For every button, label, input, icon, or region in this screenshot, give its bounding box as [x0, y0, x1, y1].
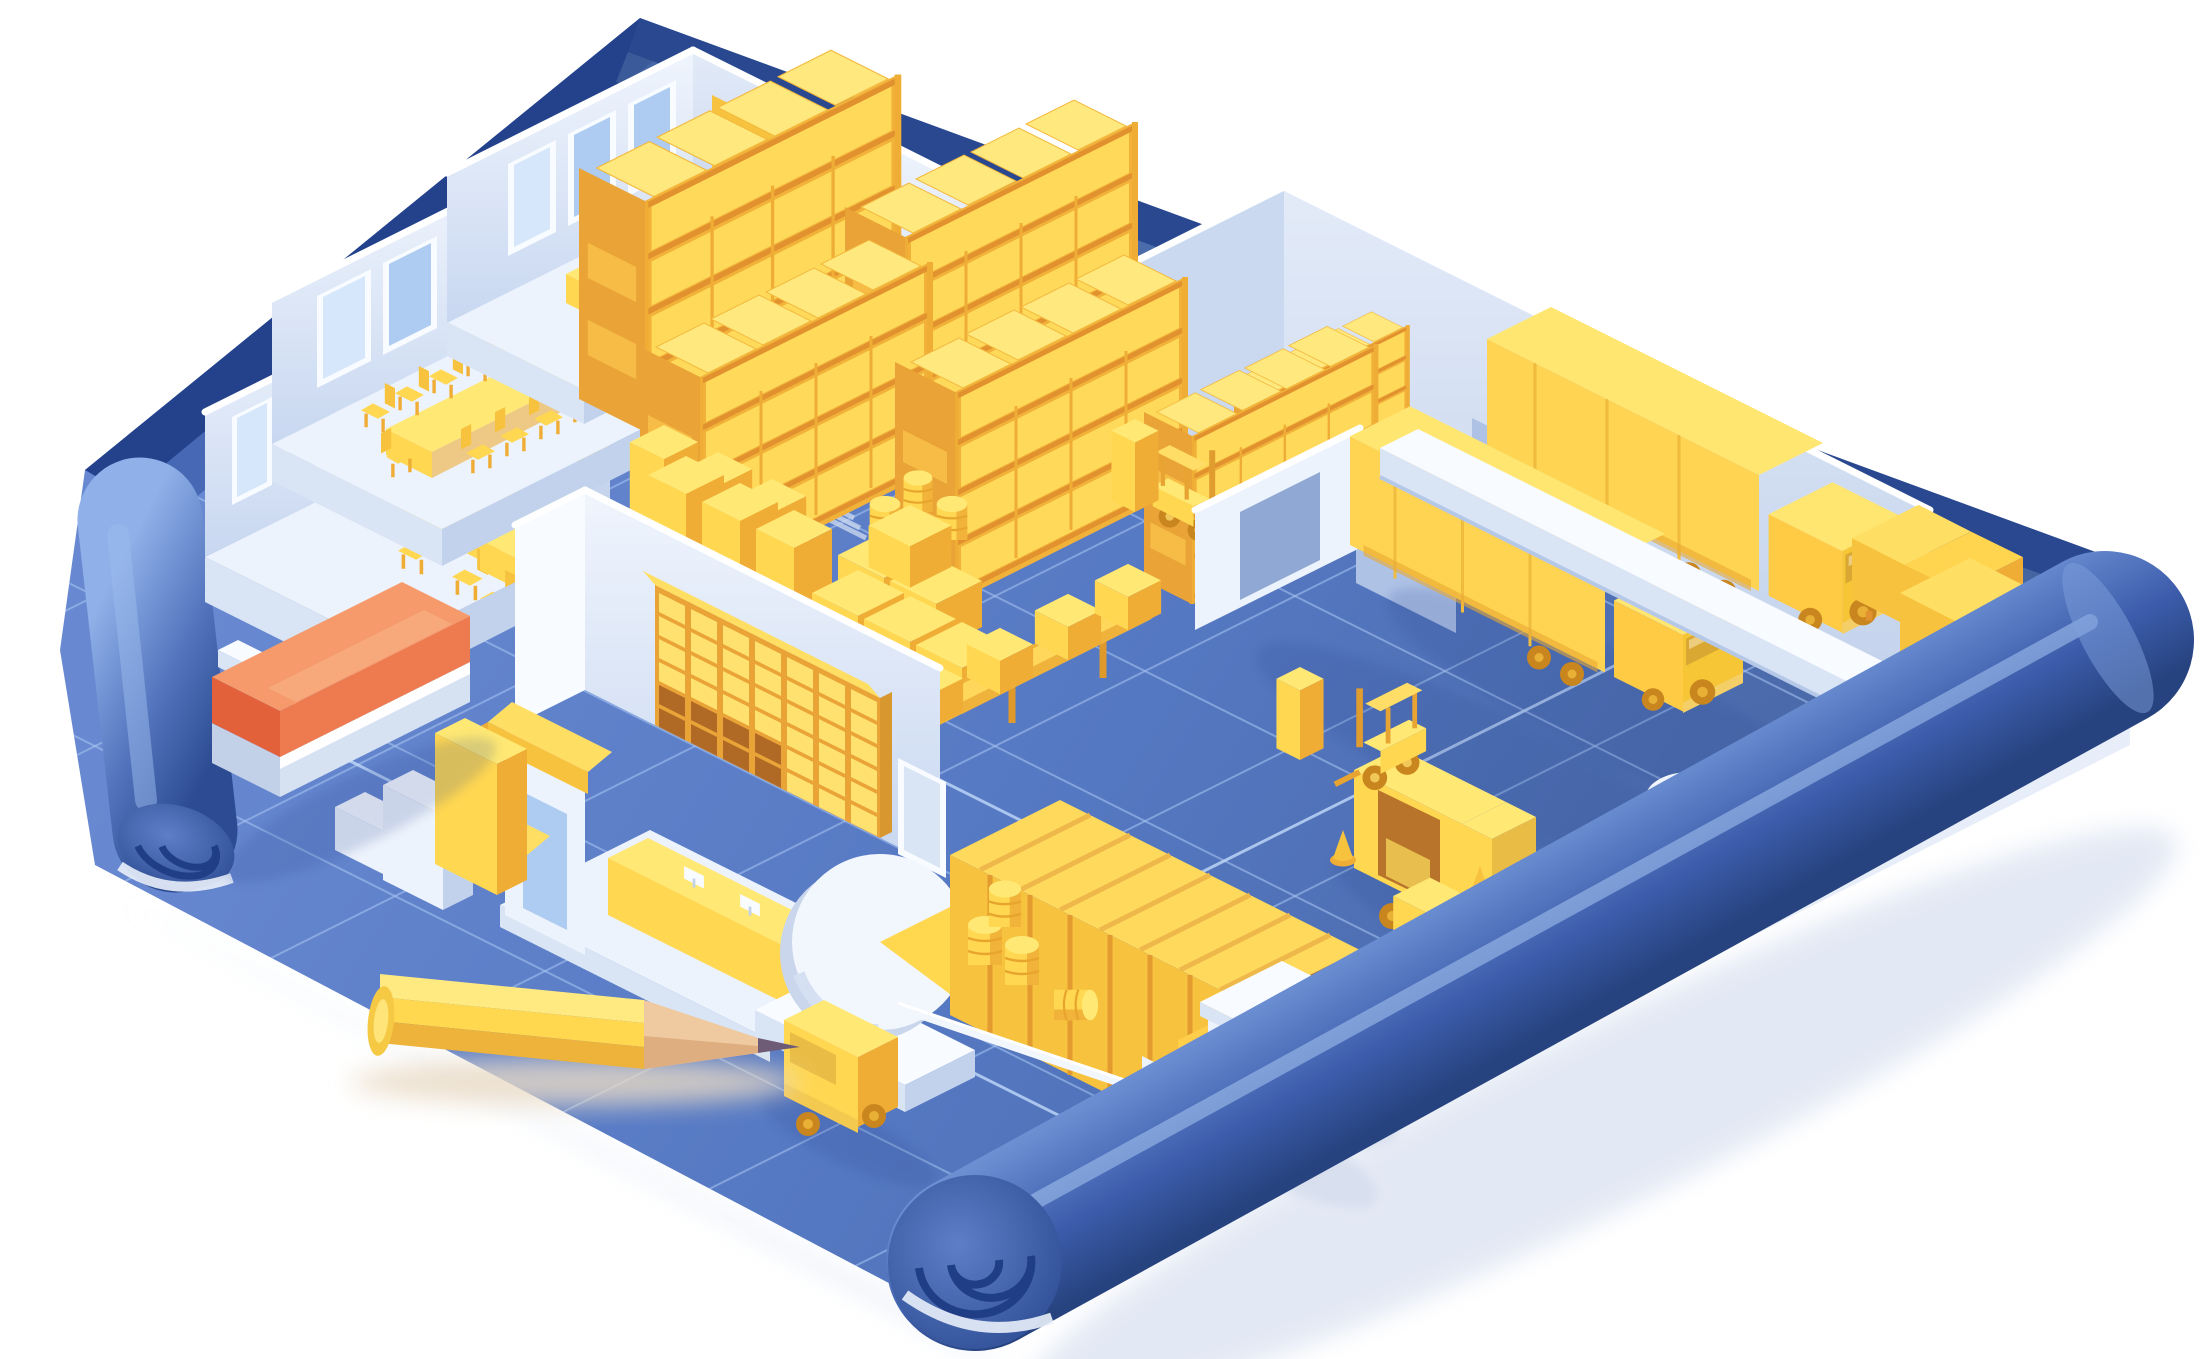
isometric-warehouse-illustration [0, 0, 2205, 1359]
mailroom-side-wall [515, 490, 585, 725]
illustration-canvas [0, 0, 2205, 1359]
pallet-box [1276, 667, 1323, 760]
pallet-box [1111, 419, 1158, 512]
